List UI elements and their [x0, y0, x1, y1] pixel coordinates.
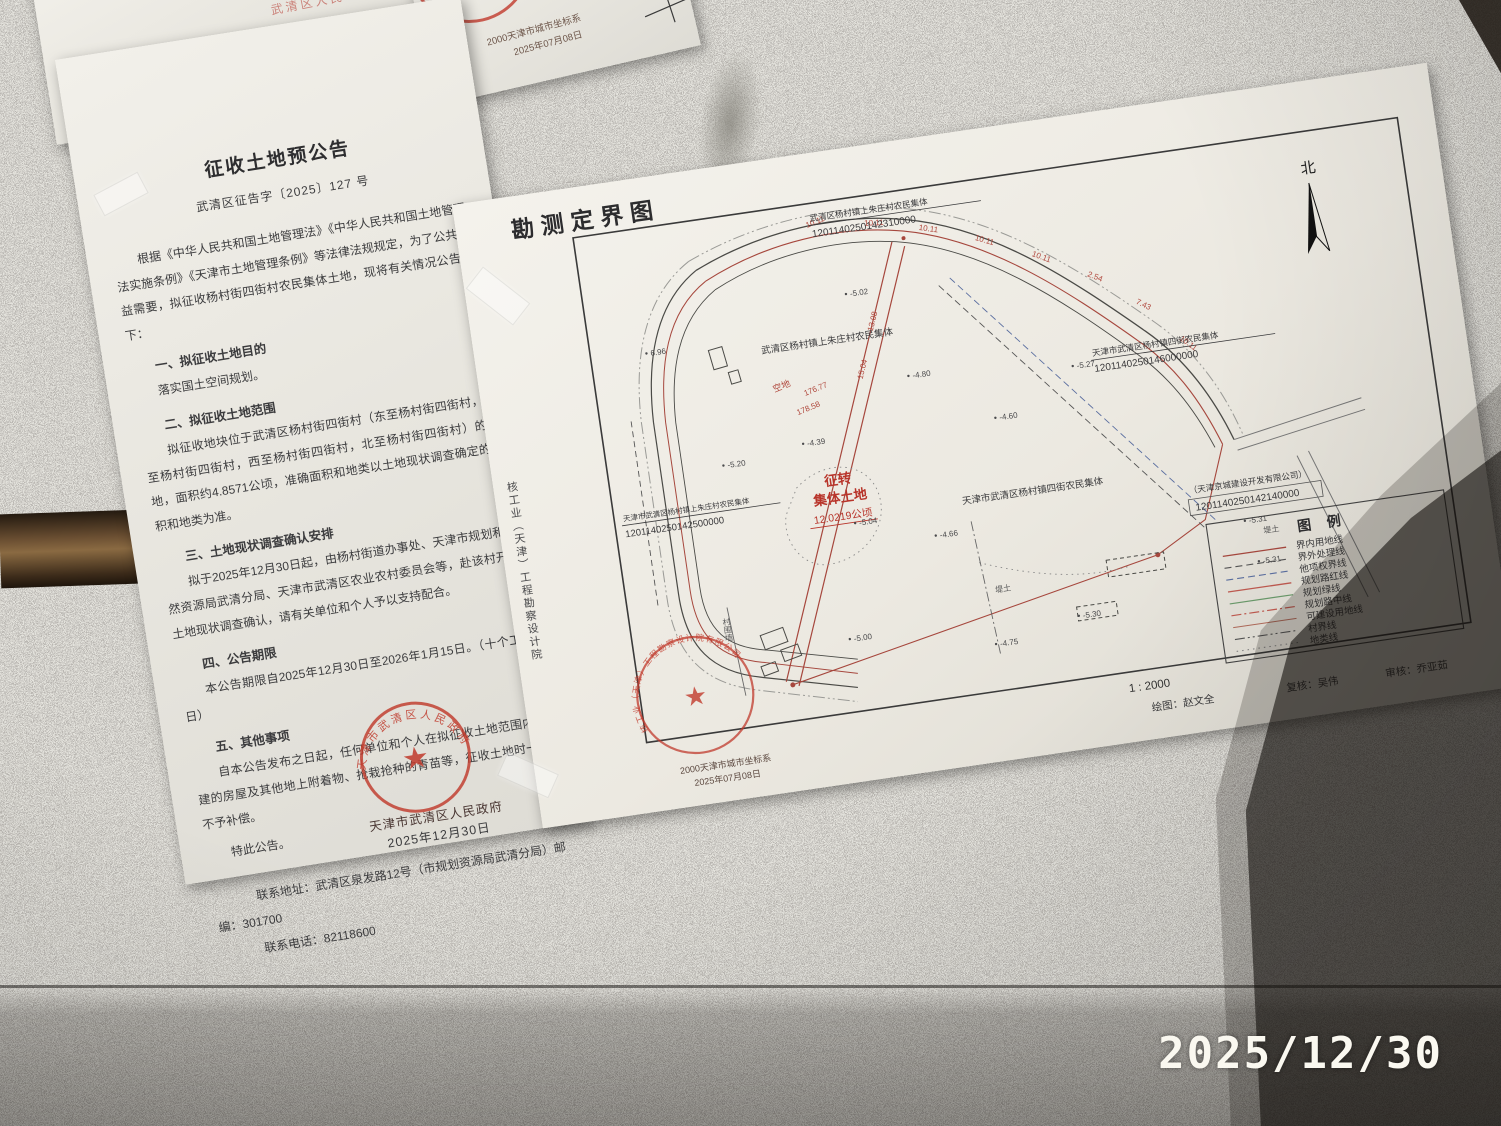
svg-text:15.04: 15.04 — [856, 358, 870, 380]
svg-text:-5.30: -5.30 — [1082, 609, 1102, 621]
svg-text:2.54: 2.54 — [1086, 270, 1104, 284]
svg-text:-5.27: -5.27 — [1076, 359, 1096, 371]
svg-text:178.58: 178.58 — [795, 399, 822, 417]
svg-text:堤土: 堤土 — [994, 582, 1011, 594]
svg-text:空地: 空地 — [771, 377, 792, 394]
svg-text:-4.75: -4.75 — [999, 637, 1019, 649]
photo-canvas: 武清区人民政府 2025 年 12 月 30 日 2000天津市城市坐标系 20… — [0, 0, 1501, 1126]
svg-text:-5.20: -5.20 — [727, 458, 747, 470]
svg-text:-5.00: -5.00 — [853, 632, 873, 644]
svg-text:集体土地: 集体土地 — [811, 485, 868, 509]
svg-text:-4.60: -4.60 — [999, 411, 1019, 423]
boundary-point — [901, 236, 906, 241]
svg-text:征转: 征转 — [823, 469, 853, 489]
svg-text:堤土: 堤土 — [1263, 523, 1280, 535]
svg-text:10.11: 10.11 — [918, 223, 939, 235]
svg-text:-4.39: -4.39 — [807, 437, 827, 449]
svg-text:10.11: 10.11 — [1031, 249, 1053, 264]
svg-text:-5.04: -5.04 — [859, 516, 879, 528]
map-scale: 1 : 2000 — [1128, 677, 1171, 695]
coord-system-notes: 2000天津市城市坐标系 2025年07月08日 — [679, 752, 774, 790]
map-frame — [573, 118, 1471, 743]
svg-text:-5.02: -5.02 — [849, 287, 869, 299]
svg-text:-4.66: -4.66 — [939, 528, 959, 540]
legend-title: 图 例 — [1296, 511, 1348, 534]
svg-text:绘图：赵文全: 绘图：赵文全 — [1151, 692, 1216, 714]
svg-text:天津市武清区杨村镇上朱庄村农民集体: 天津市武清区杨村镇上朱庄村农民集体 — [622, 495, 750, 523]
svg-text:10.11: 10.11 — [974, 233, 996, 247]
svg-text:武清区杨村镇上朱庄村农民集体: 武清区杨村镇上朱庄村农民集体 — [760, 326, 894, 357]
svg-text:审核：乔亚茹: 审核：乔亚茹 — [1384, 658, 1448, 680]
wood-frame-strip — [0, 510, 141, 589]
seal-star-icon: ★ — [682, 679, 709, 712]
seal-star-icon: ★ — [400, 740, 432, 777]
svg-text:复核：吴伟: 复核：吴伟 — [1286, 674, 1340, 694]
map-legend: 图 例 界内用地线 界外处理线 他项权界线 规划路红线 规划绿线 规划路中线 可… — [1206, 490, 1464, 663]
terrain-labels: 堤土 堤土 — [992, 523, 1283, 595]
svg-text:天津市武清区杨村镇四街农民集体: 天津市武清区杨村镇四街农民集体 — [961, 475, 1104, 508]
north-arrow-icon: 北 — [1295, 159, 1330, 254]
svg-text:6.96: 6.96 — [650, 347, 667, 358]
svg-text:176.77: 176.77 — [803, 380, 830, 398]
camera-timestamp: 2025/12/30 — [1158, 1028, 1443, 1079]
svg-text:-4.80: -4.80 — [912, 369, 932, 381]
boundary-point — [790, 682, 796, 688]
north-label: 北 — [1300, 159, 1317, 178]
